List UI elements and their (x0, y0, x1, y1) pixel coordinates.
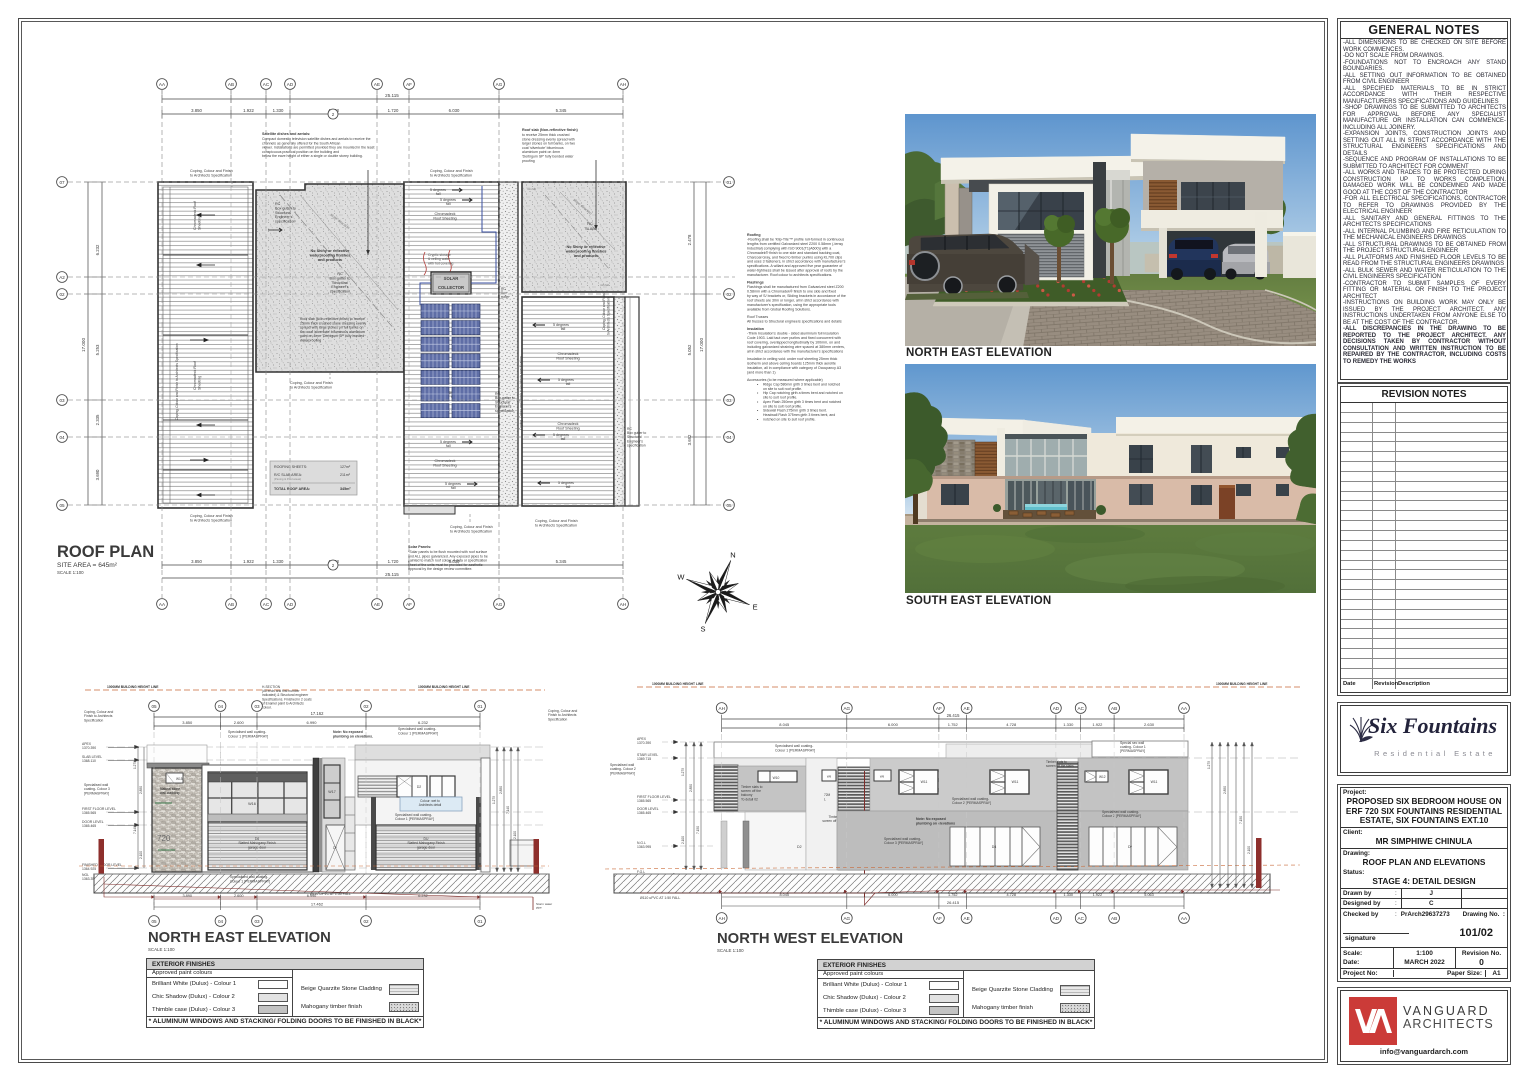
svg-text:Specification: Specification (84, 718, 103, 722)
svg-text:Coping, Colour and Finish: Coping, Colour and Finish (430, 169, 473, 173)
svg-text:Chromadek® finish to one side: Chromadek® finish to one side and standa… (747, 251, 840, 255)
svg-text:fall: fall (561, 327, 566, 331)
svg-text:17.462: 17.462 (311, 902, 324, 907)
svg-text:•: • (757, 417, 759, 421)
svg-text:AC: AC (1078, 916, 1085, 921)
svg-text:fall: fall (446, 444, 451, 448)
svg-text:AE: AE (964, 916, 970, 921)
svg-text:N: N (730, 550, 735, 559)
svg-text:To detail 02: To detail 02 (741, 797, 758, 801)
svg-text:notched on site to suit roof p: notched on site to suit roof profile. (763, 417, 816, 421)
svg-text:specification: specification (275, 220, 295, 224)
svg-text:Insulation: Insulation (747, 327, 764, 331)
svg-text:Flashings: Flashings (747, 281, 764, 285)
svg-text:and products: and products (574, 254, 598, 258)
svg-text:7.150: 7.150 (696, 826, 700, 834)
svg-text:Sheeting: Sheeting (198, 216, 202, 230)
svg-text:Chromadeck Roof: Chromadeck Roof (193, 201, 197, 230)
svg-text:roof covering, overlapped long: roof covering, overlapped longitudinally… (747, 341, 840, 345)
svg-text:2.600: 2.600 (234, 720, 245, 725)
svg-text:waterproofing finishes: waterproofing finishes (565, 250, 607, 254)
svg-text:-Roofing shall be 'Klip-Tite'™: -Roofing shall be 'Klip-Tite'™ profile r… (747, 237, 844, 241)
svg-text:2.478: 2.478 (687, 234, 692, 245)
svg-text:Industrial) complying with ISO: Industrial) complying with ISO 9001(T1(A… (747, 246, 831, 250)
svg-text:Coping, Colour and Finish to A: Coping, Colour and Finish to Architects … (175, 343, 179, 420)
svg-text:manufacturer. Roof colour to a: manufacturer. Roof colour to architects … (747, 273, 832, 277)
svg-text:05: 05 (151, 919, 157, 924)
svg-text:1.922: 1.922 (243, 108, 254, 113)
svg-text:7.150: 7.150 (1239, 816, 1243, 824)
svg-text:17.000: 17.000 (699, 338, 704, 352)
svg-text:6.990: 6.990 (307, 894, 317, 898)
svg-text:07: 07 (59, 180, 65, 185)
svg-text:isotherm and above ceiling boa: isotherm and above ceiling boards 125mm … (747, 362, 836, 366)
svg-text:by way of S/ brackets or, Slid: by way of S/ brackets or, Sliding bracke… (747, 294, 846, 298)
svg-text:5.063: 5.063 (1144, 893, 1154, 897)
svg-text:4.728: 4.728 (1006, 893, 1016, 897)
svg-text:AE: AE (964, 706, 970, 711)
svg-text:W12: W12 (1099, 775, 1106, 779)
svg-text:3.890: 3.890 (182, 894, 192, 898)
svg-text:lengths from certified Galvani: lengths from certified Galvanized steel … (747, 242, 843, 246)
svg-text:fall: fall (561, 437, 566, 441)
svg-text:waterproofing: waterproofing (300, 339, 321, 343)
svg-text:Roof Sheeting: Roof Sheeting (433, 217, 456, 221)
svg-text:Coping, Colour and Finish: Coping, Colour and Finish (190, 169, 233, 173)
svg-text:W11: W11 (921, 780, 928, 784)
svg-text:4.728: 4.728 (1006, 722, 1017, 727)
svg-text:26.415: 26.415 (947, 713, 960, 718)
svg-text:min fall: min fall (527, 187, 536, 191)
svg-text:1.922: 1.922 (1093, 893, 1103, 897)
svg-text:Structural: Structural (332, 281, 348, 285)
svg-text:02: 02 (363, 704, 369, 709)
svg-text:05: 05 (151, 704, 157, 709)
svg-text:Chromadeck: Chromadeck (558, 422, 579, 426)
svg-text:Chromadeck: Chromadeck (435, 212, 456, 216)
svg-text:6.030: 6.030 (449, 108, 460, 113)
svg-text:NORTH WEST ELEVATION: NORTH WEST ELEVATION (717, 931, 903, 947)
svg-text:AC: AC (263, 602, 270, 607)
svg-text:ROOF PLAN: ROOF PLAN (57, 543, 154, 561)
svg-text:2.850: 2.850 (139, 786, 143, 794)
svg-text:AF: AF (406, 82, 412, 87)
svg-text:Insulation in ceiling void: un: Insulation in ceiling void: under roof s… (747, 357, 837, 361)
svg-text:NORTH EAST ELEVATION: NORTH EAST ELEVATION (148, 930, 331, 946)
svg-text:7.140: 7.140 (506, 806, 510, 814)
svg-text:05: 05 (726, 503, 732, 508)
svg-text:D2: D2 (797, 845, 802, 849)
svg-text:1.752: 1.752 (948, 722, 959, 727)
svg-text:and uses 3 fasteners, in stric: and uses 3 fasteners, in strict accordan… (747, 260, 846, 264)
svg-text:E: E (753, 602, 758, 611)
svg-text:2.100: 2.100 (681, 836, 685, 844)
svg-text:AH: AH (620, 82, 626, 87)
svg-text:1365.565: 1365.565 (637, 799, 651, 803)
svg-text:Architects detail: Architects detail (419, 803, 442, 807)
svg-text:AA: AA (159, 82, 166, 87)
svg-text:1000MM BUILDING HEIGHT LINE: 1000MM BUILDING HEIGHT LINE (652, 682, 704, 686)
svg-text:Ø110 uPVC AT 1:50 FALL: Ø110 uPVC AT 1:50 FALL (640, 896, 680, 900)
svg-text:03: 03 (59, 398, 65, 403)
svg-text:211m²: 211m² (340, 473, 351, 477)
svg-text:AA: AA (159, 602, 166, 607)
svg-text:proofing: proofing (522, 159, 535, 163)
svg-text:AF: AF (936, 916, 942, 921)
svg-text:6.990: 6.990 (306, 720, 317, 725)
svg-text:AG: AG (496, 602, 503, 607)
svg-text:3.850: 3.850 (182, 720, 193, 725)
svg-text:AG: AG (843, 706, 850, 711)
svg-text:specification: specification (330, 290, 350, 294)
svg-text:1369.715: 1369.715 (637, 757, 651, 761)
svg-text:03: 03 (726, 398, 732, 403)
svg-text:insulation, all in compliance: insulation, all in compliance with categ… (747, 366, 841, 370)
svg-text:Coping, Colour and Finish: Coping, Colour and Finish (290, 381, 333, 385)
svg-text:Colour 1 [PERMASPRAY]: Colour 1 [PERMASPRAY] (775, 748, 815, 752)
svg-text:W11: W11 (1151, 780, 1158, 784)
svg-text:2.100: 2.100 (139, 851, 143, 859)
svg-text:04: 04 (218, 919, 224, 924)
svg-text:D4: D4 (992, 845, 997, 849)
svg-text:AD: AD (1053, 916, 1060, 921)
svg-text:and products: and products (318, 258, 342, 262)
svg-text:02: 02 (726, 292, 732, 297)
svg-text:Roof Sheeting: Roof Sheeting (433, 464, 456, 468)
svg-text:5.345: 5.345 (556, 559, 567, 564)
svg-text:Roof slab (Non-reflective fini: Roof slab (Non-reflective finish) (522, 128, 578, 132)
svg-text:•: • (757, 383, 759, 387)
svg-text:25.115: 25.115 (385, 93, 399, 98)
svg-text:Accessories (to be measured wh: Accessories (to be measured where applic… (747, 378, 823, 382)
svg-text:below the eave height of eithe: below the eave height of either a single… (262, 154, 363, 158)
svg-text:Box gutter to: Box gutter to (275, 206, 296, 210)
svg-text:AH: AH (620, 602, 626, 607)
svg-text:W11: W11 (1012, 780, 1019, 784)
svg-text:01: 01 (477, 704, 483, 709)
svg-text:water-tightness shall be issue: water-tightness shall be issued after ap… (747, 269, 843, 273)
svg-text:Chromadeck: Chromadeck (558, 352, 579, 356)
svg-text:W15: W15 (176, 777, 183, 781)
svg-text:to Architects Specification: to Architects Specification (450, 530, 492, 534)
svg-text:1.275: 1.275 (492, 796, 496, 804)
svg-text:to Architects Specification: to Architects Specification (190, 519, 232, 523)
svg-text:2.100: 2.100 (1247, 846, 1251, 854)
svg-text:1.275: 1.275 (1207, 761, 1211, 769)
svg-text:6.000: 6.000 (888, 893, 898, 897)
svg-text:6.232: 6.232 (418, 720, 429, 725)
svg-text:1365.465: 1365.465 (637, 811, 651, 815)
svg-text:(Paving & Pool areas): (Paving & Pool areas) (274, 477, 301, 481)
svg-text:RC: RC (337, 272, 343, 276)
svg-text:fall: fall (566, 382, 571, 386)
svg-text:fall: fall (451, 486, 456, 490)
svg-text:AH: AH (719, 916, 725, 921)
svg-text:Coping, Colour and Finish: Coping, Colour and Finish (535, 519, 578, 523)
svg-text:SCALE 1:100: SCALE 1:100 (717, 948, 744, 953)
svg-text:AE: AE (374, 602, 380, 607)
svg-text:6.000: 6.000 (888, 722, 899, 727)
svg-text:with hot covering: with hot covering (428, 261, 454, 265)
svg-text:No Shiny or reflective: No Shiny or reflective (566, 245, 605, 249)
svg-text:2.850: 2.850 (689, 784, 693, 792)
svg-text:specification: specification (495, 409, 514, 413)
svg-text:garage door: garage door (417, 845, 436, 849)
svg-text:5.052: 5.052 (687, 344, 692, 355)
svg-text:AG: AG (496, 82, 503, 87)
svg-text:1.330: 1.330 (273, 108, 284, 113)
svg-text:345m²: 345m² (340, 487, 351, 491)
svg-text:specification: specification (627, 443, 646, 447)
svg-text:W9: W9 (880, 775, 885, 779)
svg-text:roof sheets are 30m or longer,: roof sheets are 30m or longer, all in st… (747, 299, 839, 303)
svg-text:25.115: 25.115 (385, 572, 399, 577)
svg-text:6.232: 6.232 (95, 244, 100, 255)
svg-text:2.100: 2.100 (513, 831, 517, 839)
svg-text:A2: A2 (59, 275, 65, 280)
svg-text:Charcoal Gray, and fixed to ti: Charcoal Gray, and fixed to timber purli… (747, 255, 842, 259)
svg-text:ROOFING SHEETS:: ROOFING SHEETS: (274, 465, 307, 469)
svg-text:3.850: 3.850 (191, 559, 202, 564)
svg-text:AF: AF (406, 602, 412, 607)
svg-text:Colour 1 [PERMASPRAY]: Colour 1 [PERMASPRAY] (395, 817, 434, 821)
svg-text:AF: AF (936, 706, 942, 711)
svg-text:Roof Trusses: Roof Trusses (747, 315, 768, 319)
svg-text:2.630: 2.630 (1144, 722, 1155, 727)
svg-text:05: 05 (59, 503, 65, 508)
svg-text:to Architects Specification: to Architects Specification (607, 297, 611, 335)
svg-text:AA: AA (1181, 706, 1188, 711)
svg-text:available from Global Roofing: available from Global Roofing Solutions. (747, 307, 811, 311)
svg-text:02: 02 (363, 919, 369, 924)
svg-text:fall: fall (436, 192, 441, 196)
svg-text:screen off the stairs: screen off the stairs (1046, 764, 1074, 768)
svg-text:plumbing on elevations: plumbing on elevations (916, 821, 955, 825)
svg-text:7.140: 7.140 (133, 826, 137, 834)
svg-text:AD: AD (287, 82, 294, 87)
svg-text:pipe: pipe (536, 906, 542, 910)
svg-text:5.345: 5.345 (556, 108, 567, 113)
svg-text:1370.390: 1370.390 (637, 741, 651, 745)
svg-text:AD: AD (287, 602, 294, 607)
svg-text:Structural: Structural (275, 211, 291, 215)
svg-text:SCALE 1:100: SCALE 1:100 (148, 947, 175, 952)
svg-text:Sheeting: Sheeting (198, 376, 202, 390)
svg-text:1365.465: 1365.465 (82, 824, 96, 828)
svg-text:Code 1903. Laid taut over purl: Code 1903. Laid taut over purlins and fi… (747, 336, 841, 340)
svg-text:AB: AB (228, 82, 234, 87)
svg-text:Engineer's: Engineer's (331, 285, 348, 289)
svg-text:1.330: 1.330 (1064, 893, 1074, 897)
svg-text:72M: 72M (824, 793, 831, 797)
svg-text:including galvanized straining: including galvanized straining wire spac… (747, 345, 845, 349)
svg-text:1.330: 1.330 (1063, 722, 1074, 727)
svg-text:L: L (824, 798, 826, 802)
svg-text:RC: RC (275, 202, 281, 206)
svg-text:3.850: 3.850 (191, 108, 202, 113)
svg-text:1364.925: 1364.925 (82, 867, 96, 871)
svg-text:W17: W17 (328, 790, 335, 794)
svg-text:1363.995: 1363.995 (637, 845, 651, 849)
svg-text:SCALE 1:100: SCALE 1:100 (57, 570, 84, 575)
svg-text:to Architects Specification: to Architects Specification (535, 524, 577, 528)
svg-text:1370.390: 1370.390 (82, 746, 96, 750)
svg-text:6.232: 6.232 (418, 894, 428, 898)
svg-text:Chromadeck: Chromadeck (435, 459, 456, 463)
svg-text:04: 04 (218, 704, 224, 709)
svg-text:17.162: 17.162 (311, 711, 324, 716)
svg-text:fall: fall (446, 202, 451, 206)
svg-text:3.692: 3.692 (687, 434, 692, 445)
svg-text:COLLECTOR: COLLECTOR (438, 285, 464, 290)
svg-text:1.275: 1.275 (133, 761, 137, 769)
svg-text:Roof Sheeting: Roof Sheeting (556, 427, 579, 431)
svg-text:Colour 2 [PERMASPRAY]: Colour 2 [PERMASPRAY] (952, 801, 991, 805)
svg-text:[PERMASPRAY]: [PERMASPRAY] (1120, 749, 1145, 753)
svg-text:S: S (701, 625, 706, 634)
svg-text:720: 720 (157, 834, 171, 843)
svg-text:W10: W10 (773, 776, 780, 780)
svg-text:17.000: 17.000 (81, 338, 86, 352)
svg-text:AD: AD (1053, 706, 1060, 711)
svg-text:Coping, Colour and Finish: Coping, Colour and Finish (450, 525, 493, 529)
svg-text:AH: AH (719, 706, 725, 711)
svg-text:to Architects Specification: to Architects Specification (430, 174, 472, 178)
svg-text:[PERMASPRAY]: [PERMASPRAY] (84, 791, 109, 795)
svg-text:AG: AG (843, 916, 850, 921)
svg-text:AC: AC (1078, 706, 1085, 711)
svg-text:W16: W16 (248, 802, 256, 806)
svg-text:SLAB: SLAB (585, 227, 595, 231)
svg-text:waterproofing finishes: waterproofing finishes (309, 254, 351, 258)
svg-text:to Architects Specification: to Architects Specification (190, 174, 232, 178)
svg-text:04: 04 (59, 435, 65, 440)
svg-text:1.720: 1.720 (388, 108, 399, 113)
svg-text:03: 03 (254, 704, 260, 709)
svg-text:1.720: 1.720 (388, 559, 399, 564)
svg-text:Chromadeck Roof: Chromadeck Roof (193, 361, 197, 390)
svg-text:Specification: Specification (548, 717, 567, 721)
svg-text:-Think Insulation's double - s: -Think Insulation's double - sided alumi… (747, 332, 839, 336)
svg-text:Solar Panels:: Solar Panels: (408, 545, 431, 549)
svg-text:Satellite dishes and aerials:: Satellite dishes and aerials: (262, 132, 310, 136)
svg-text:Coping, Colour and Finish to A: Coping, Colour and Finish to Architects … (519, 356, 523, 430)
svg-text:127m²: 127m² (340, 465, 351, 469)
svg-text:specifications. A willant and: specifications. A willant and approved f… (747, 264, 842, 268)
svg-text:fall: fall (566, 485, 571, 489)
svg-text:1.922: 1.922 (243, 559, 254, 564)
svg-text:3.690: 3.690 (95, 469, 100, 480)
svg-text:All trusses to Structural engi: All trusses to Structural engineers spec… (747, 320, 842, 324)
svg-text:D2: D2 (417, 785, 421, 789)
svg-text:01: 01 (477, 919, 483, 924)
svg-text:•: • (757, 400, 759, 404)
svg-text:W9: W9 (827, 775, 832, 779)
svg-text:01: 01 (726, 180, 732, 185)
svg-text:manufacturer's specification,: manufacturer's specification, using the … (747, 303, 836, 307)
svg-text:1000MM BUILDING HEIGHT LINE: 1000MM BUILDING HEIGHT LINE (107, 685, 159, 689)
svg-text:all in strict accordance with: all in strict accordance with the manufa… (747, 349, 843, 353)
svg-text:03: 03 (254, 919, 260, 924)
svg-text:to Architects Specification: to Architects Specification (290, 386, 332, 390)
svg-text:26.415: 26.415 (947, 900, 960, 905)
svg-text:02: 02 (59, 292, 65, 297)
svg-text:1000MM BUILDING HEIGHT LINE: 1000MM BUILDING HEIGHT LINE (1216, 682, 1268, 686)
svg-text:TOTAL ROOF AREA:: TOTAL ROOF AREA: (274, 487, 310, 491)
svg-text:(and more than 1): (and more than 1) (747, 370, 776, 374)
svg-text:2.335: 2.335 (95, 414, 100, 425)
svg-text:AB: AB (228, 602, 234, 607)
svg-text:AB: AB (1111, 706, 1117, 711)
svg-text:Coping, Colour and Finish: Coping, Colour and Finish (190, 514, 233, 518)
svg-text:W: W (677, 573, 685, 582)
svg-text:2.600: 2.600 (234, 894, 244, 898)
svg-text:approval by the design review: approval by the design review committee. (408, 567, 472, 571)
svg-text:Colour 1 [PERMASPRAY]: Colour 1 [PERMASPRAY] (228, 734, 268, 738)
svg-text:Colour 1 [PERMASPRAY]: Colour 1 [PERMASPRAY] (398, 731, 438, 735)
svg-text:plumbing on elevations.: plumbing on elevations. (333, 734, 373, 738)
svg-text:D*: D* (1128, 845, 1133, 849)
svg-text:Colour 3 [PERMASPRAY]: Colour 3 [PERMASPRAY] (884, 841, 923, 845)
svg-text:0.58mm with a Chromadek® finis: 0.58mm with a Chromadek® finish to one s… (747, 290, 836, 294)
svg-text:1.330: 1.330 (273, 559, 284, 564)
svg-text:SITE AREA = 645m²: SITE AREA = 645m² (57, 562, 118, 569)
svg-text:1000MM BUILDING HEIGHT LINE: 1000MM BUILDING HEIGHT LINE (418, 685, 470, 689)
svg-text:Colour 1 [PERMASPRAY]: Colour 1 [PERMASPRAY] (230, 879, 270, 883)
svg-text:2.850: 2.850 (499, 786, 503, 794)
svg-text:AA: AA (1181, 916, 1188, 921)
svg-text:Coping, Colour and Finish: Coping, Colour and Finish (602, 292, 606, 330)
svg-text:1.922: 1.922 (1092, 722, 1103, 727)
svg-text:2.850: 2.850 (1223, 786, 1227, 794)
svg-text:1365.565: 1365.565 (82, 811, 96, 815)
svg-text:gutter: gutter (501, 295, 510, 299)
svg-text:wall cladding: wall cladding (160, 791, 180, 795)
svg-text:04: 04 (726, 435, 732, 440)
svg-text:garage door: garage door (248, 845, 267, 849)
svg-text:No Shiny or reflective: No Shiny or reflective (310, 249, 349, 253)
svg-text:5.253: 5.253 (95, 344, 100, 355)
svg-text:Roof Sheeting: Roof Sheeting (556, 357, 579, 361)
svg-text:AB: AB (1111, 916, 1117, 921)
svg-text:AE: AE (374, 82, 380, 87)
svg-text:Flashings shall be manufacture: Flashings shall be manufactured from Gal… (747, 285, 844, 289)
svg-text:colour.: colour. (262, 706, 272, 710)
svg-text:Colour 2 [PERMASPRAY]: Colour 2 [PERMASPRAY] (1102, 814, 1141, 818)
svg-text:•: • (757, 409, 759, 413)
svg-text:min fall: min fall (600, 283, 609, 287)
svg-text:Roofing: Roofing (747, 233, 761, 237)
svg-text:AC: AC (263, 82, 270, 87)
svg-text:1368.110: 1368.110 (82, 759, 96, 763)
svg-text:•: • (757, 391, 759, 395)
svg-text:1.275: 1.275 (681, 768, 685, 776)
svg-text:1.752: 1.752 (948, 893, 958, 897)
svg-text:8.045: 8.045 (779, 893, 789, 897)
svg-text:RC: RC (587, 222, 593, 226)
svg-text:8.045: 8.045 (779, 722, 790, 727)
